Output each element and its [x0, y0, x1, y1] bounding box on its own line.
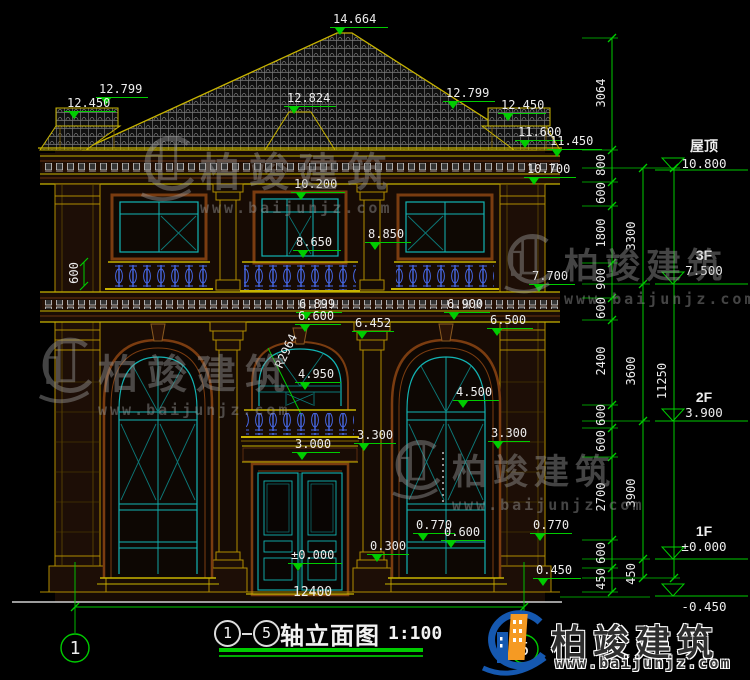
elev-marker: 8.650: [293, 236, 341, 251]
title-dash: [242, 633, 252, 635]
elev-marker: 12.799: [443, 87, 495, 102]
elev-marker: 12.450: [498, 99, 546, 114]
elev-marker: 0.770: [530, 519, 572, 534]
elev-marker: 6.452: [352, 317, 394, 332]
elev-marker: 10.700: [524, 163, 576, 178]
axis-bubble-1: 1: [61, 638, 89, 659]
drawing-title: 15轴立面图1:100: [214, 616, 442, 651]
overall-width-dim: 12400: [293, 585, 332, 600]
elev-marker: 14.664: [330, 13, 388, 28]
dim-value: 3600: [624, 349, 638, 393]
watermark-logo-icon: [498, 230, 556, 302]
dim-value: 450: [594, 557, 608, 601]
elev-marker: 0.600: [441, 526, 485, 541]
elev-marker: 0.300: [367, 540, 409, 555]
dim-value: 450: [624, 552, 638, 596]
company-logo-icon: [477, 610, 551, 678]
watermark: 柏竣建筑www.baijunjz.com: [98, 342, 294, 419]
elev-marker: 0.450: [533, 564, 581, 579]
company-logo: 柏竣建筑 www.baijunjz.com: [477, 610, 551, 680]
company-url: www.baijunjz.com: [555, 654, 732, 672]
elev-marker: ±0.000: [288, 549, 342, 564]
watermark-logo-icon: [386, 436, 444, 508]
floor-label-roof: 屋顶10.800: [666, 136, 742, 171]
floor-label-2f: 2F3.900: [666, 389, 742, 420]
elev-marker: 6.600: [295, 310, 341, 325]
floor-label-1f: 1F±0.000: [666, 523, 742, 554]
entrance-door: [246, 464, 354, 595]
elev-marker: 6.900: [444, 298, 490, 313]
cad-elevation-drawing: 14.664 12.799 12.824 12.450 12.799 12.45…: [0, 0, 750, 680]
elev-marker: 4.500: [453, 386, 499, 401]
balcony-balusters: [105, 262, 499, 291]
title-axis-start: 1: [214, 620, 241, 647]
elev-marker: 3.300: [488, 427, 530, 442]
elev-marker: 6.500: [487, 314, 533, 329]
title-axis-end: 5: [253, 620, 280, 647]
dim-value: 2400: [594, 339, 608, 383]
watermark: 柏竣建筑www.baijunjz.com: [200, 140, 396, 217]
watermark: 柏竣建筑www.baijunjz.com: [564, 238, 750, 308]
watermark-logo-icon: [134, 132, 198, 210]
elev-marker: 12.450: [64, 97, 116, 112]
title-underline-2: [219, 655, 423, 657]
floor-label-basement: -0.450: [666, 599, 742, 614]
elev-marker: 12.824: [284, 92, 336, 107]
watermark: 柏竣建筑www.baijunjz.com: [452, 444, 645, 514]
elev-marker: 3.000: [292, 438, 340, 453]
dim-value: 600: [594, 171, 608, 215]
title-underline: [219, 648, 423, 652]
elev-marker: 8.850: [365, 228, 411, 243]
title-scale: 1:100: [388, 623, 442, 644]
dim-value: 3064: [594, 71, 608, 115]
elev-marker: 4.950: [295, 368, 341, 383]
title-text: 轴立面图: [280, 623, 380, 650]
dim-value: 600: [67, 251, 81, 295]
watermark-logo-icon: [32, 334, 96, 412]
